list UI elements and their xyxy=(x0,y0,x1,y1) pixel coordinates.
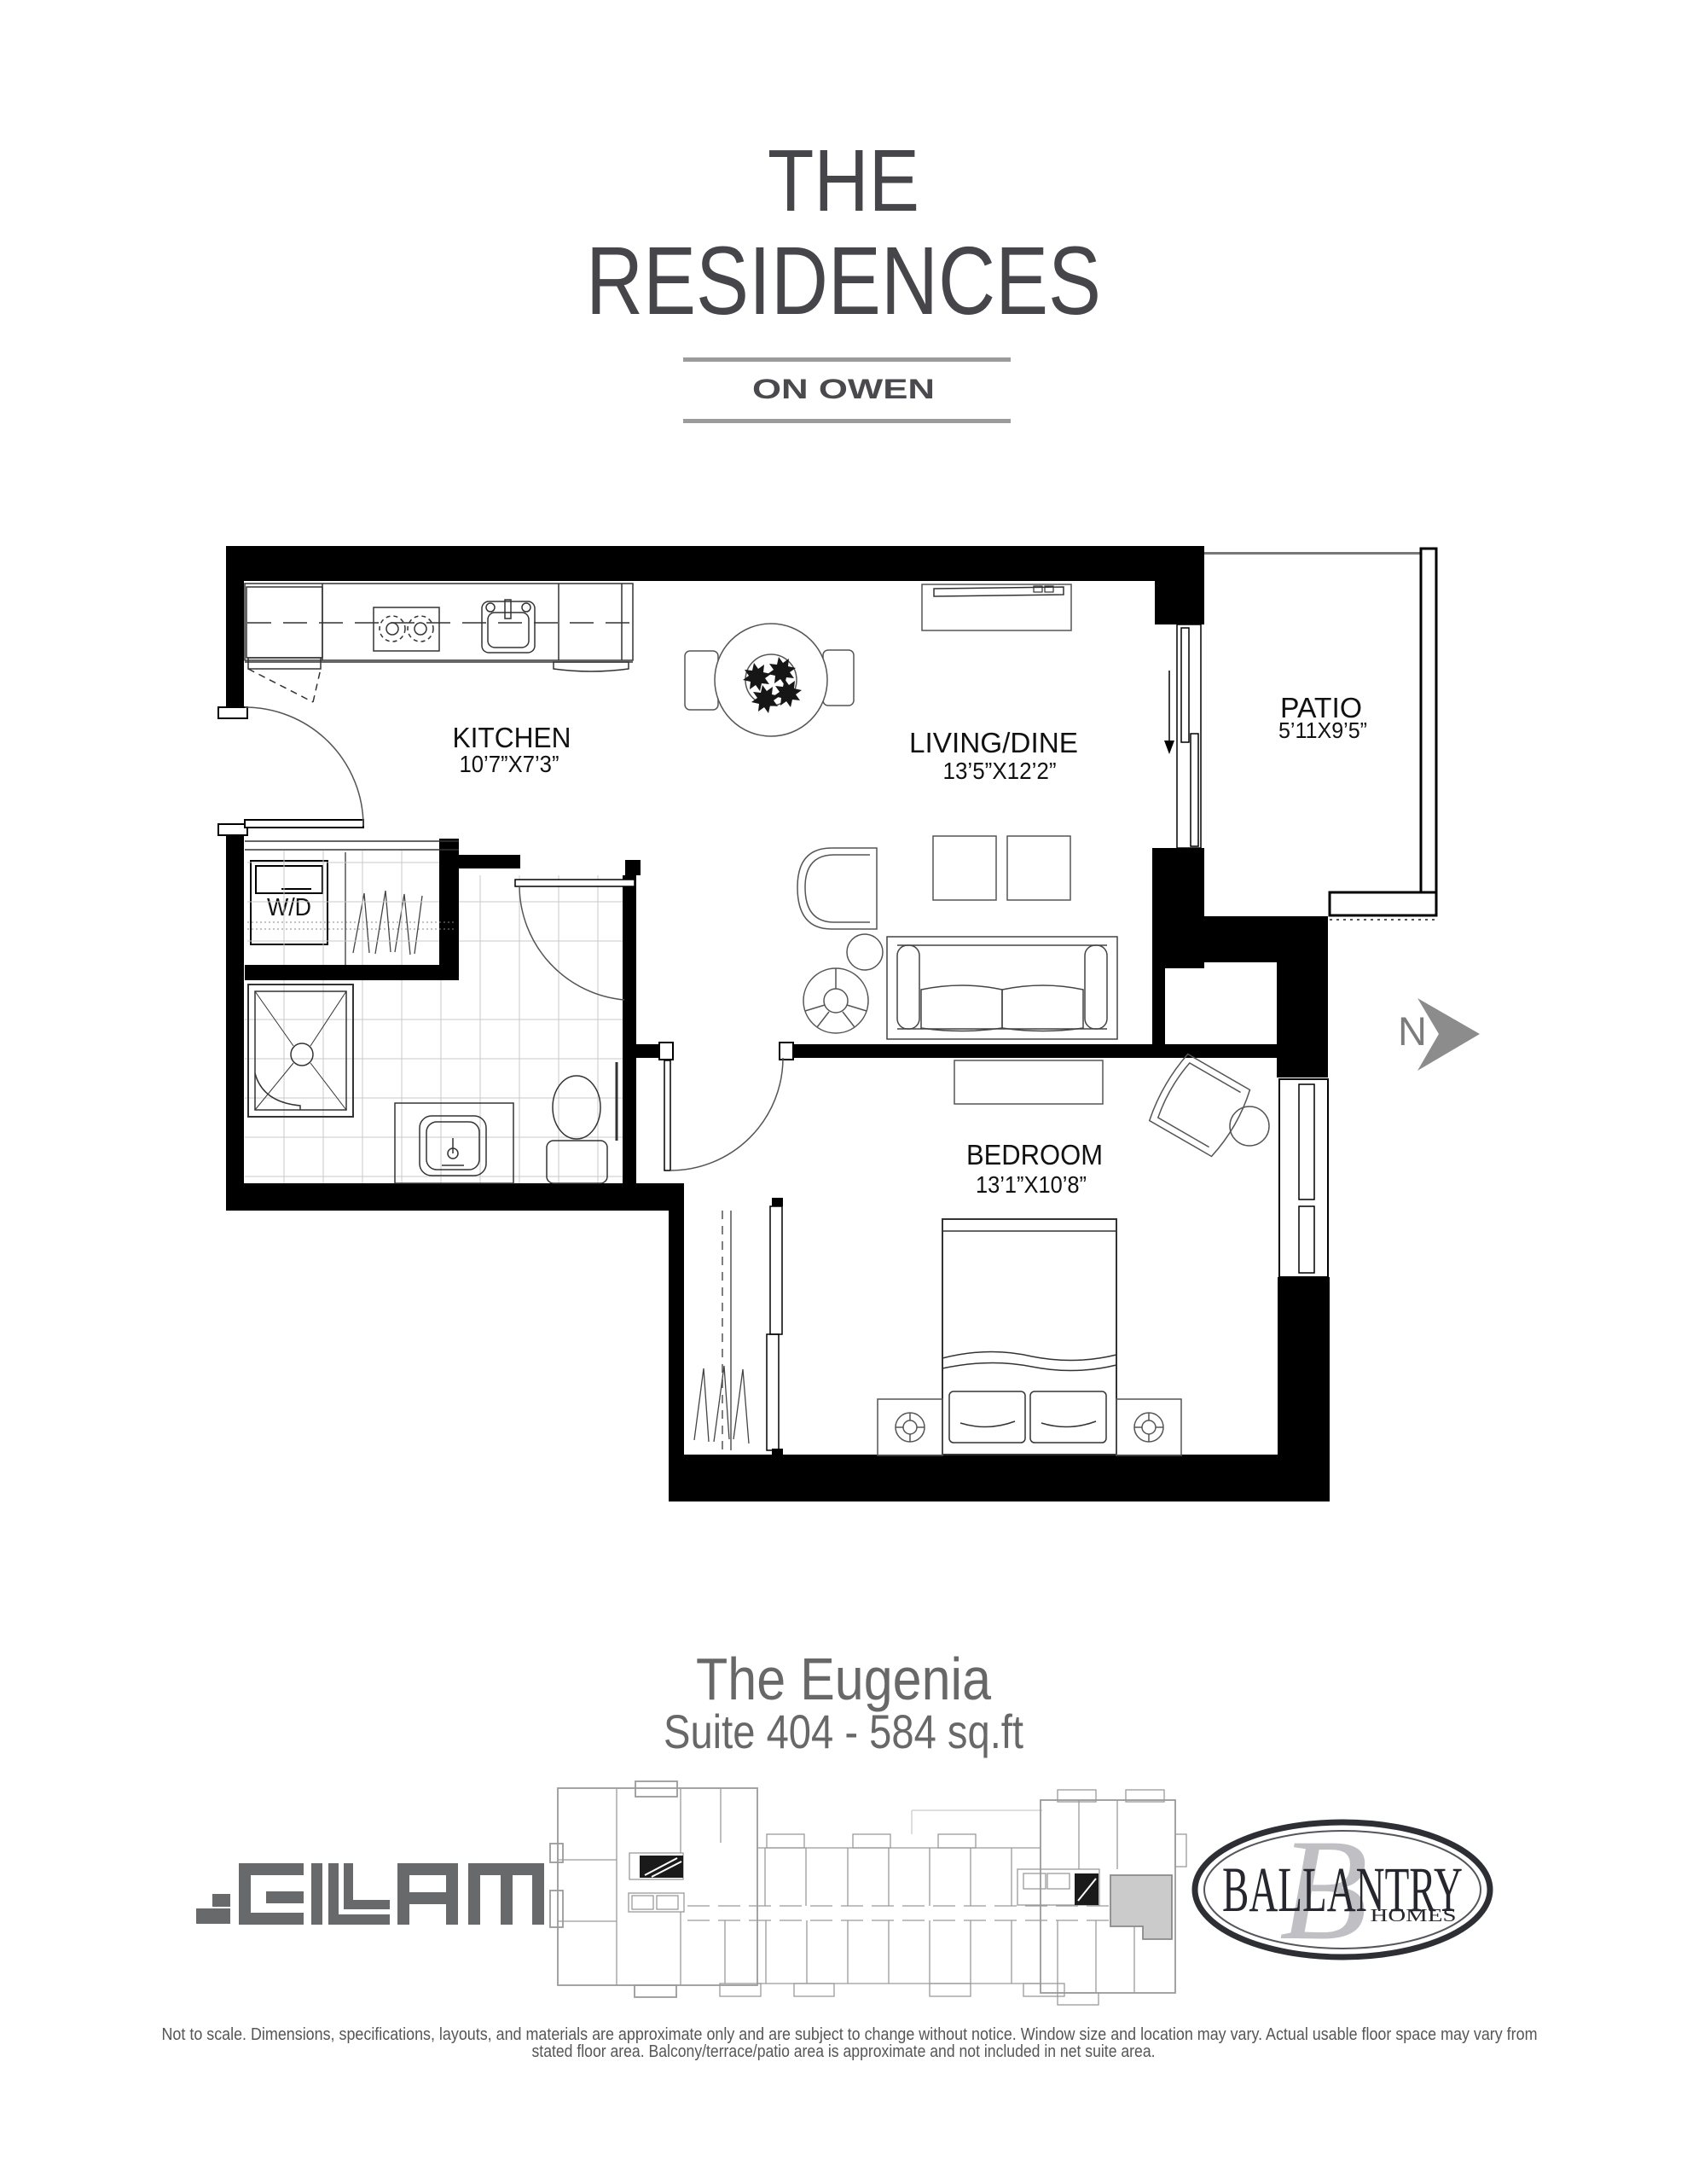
svg-text:10’7”X7’3”: 10’7”X7’3” xyxy=(460,751,559,777)
svg-text:N: N xyxy=(1398,1008,1427,1054)
svg-text:RESIDENCES: RESIDENCES xyxy=(586,227,1101,334)
svg-text:The Eugenia: The Eugenia xyxy=(696,1646,991,1712)
svg-text:Not to scale. Dimensions, spec: Not to scale. Dimensions, specifications… xyxy=(162,2025,1538,2044)
svg-text:BEDROOM: BEDROOM xyxy=(966,1139,1103,1170)
svg-text:5’11X9’5”: 5’11X9’5” xyxy=(1278,717,1367,743)
svg-text:HOMES: HOMES xyxy=(1371,1905,1457,1926)
svg-text:W/D: W/D xyxy=(267,894,311,921)
svg-text:KITCHEN: KITCHEN xyxy=(453,722,571,753)
svg-text:stated floor area. Balcony/ter: stated floor area. Balcony/terrace/patio… xyxy=(532,2042,1156,2061)
svg-text:THE: THE xyxy=(768,131,919,229)
svg-text:ON OWEN: ON OWEN xyxy=(752,374,935,404)
svg-text:13’5”X12’2”: 13’5”X12’2” xyxy=(943,758,1057,784)
svg-text:13’1”X10’8”: 13’1”X10’8” xyxy=(976,1171,1087,1198)
svg-text:LIVING/DINE: LIVING/DINE xyxy=(909,727,1078,758)
svg-text:Suite 404 - 584 sq.ft: Suite 404 - 584 sq.ft xyxy=(664,1705,1023,1758)
